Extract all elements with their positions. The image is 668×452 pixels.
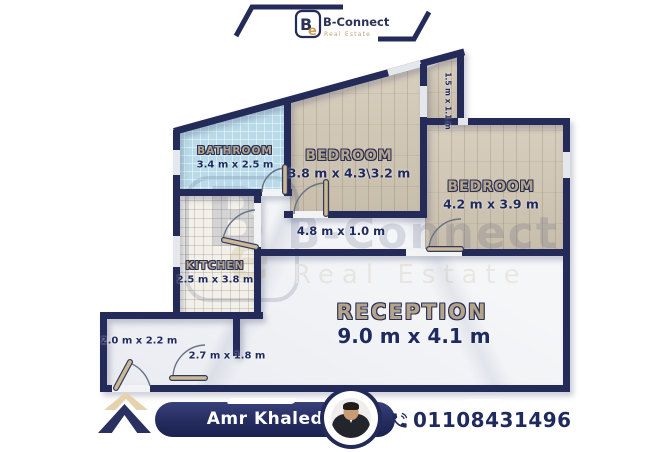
phone-icon	[390, 411, 409, 430]
bedroom-2-dims: 4.2 m x 3.9 m	[443, 197, 539, 212]
corridor-dims: 4.8 m x 1.0 m	[297, 224, 385, 238]
bedroom-1-label: BEDROOM	[305, 148, 392, 164]
bedroom1-door-arc	[294, 183, 325, 214]
phone-row: 01108431496	[390, 407, 572, 433]
bathroom-label: BATHROOM	[197, 145, 273, 157]
passage-dims: 2.7 m x 1.8 m	[189, 351, 266, 362]
brand-name: B-Connect	[323, 15, 390, 29]
agent-photo	[331, 398, 371, 438]
entrance-door-leaf	[116, 362, 130, 388]
bathroom-dims: 3.4 m x 2.5 m	[197, 160, 274, 171]
kitchen-label: KITCHEN	[186, 260, 245, 272]
bedroom2-door-arc	[429, 219, 461, 247]
agent-name: Amr Khaled	[195, 409, 335, 429]
reception-dims: 9.0 m x 4.1 m	[337, 324, 490, 348]
bathroom-door-arc	[262, 168, 285, 192]
reception-label: RECEPTION	[336, 300, 487, 324]
kitchen-door-arc	[223, 210, 255, 239]
phone-number: 01108431496	[413, 408, 572, 432]
brand-header: B e B-Connect Real Estate	[228, 2, 440, 50]
banner-glint	[226, 398, 298, 404]
b-connect-monogram-icon: B e	[296, 11, 320, 39]
entrance-door-arc	[130, 363, 150, 386]
bedroom-2-label: BEDROOM	[447, 179, 534, 195]
entry-dims: 2.0 m x 2.2 m	[101, 336, 178, 347]
bedroom-1-dims: 3.8 m x 4.3\3.2 m	[288, 166, 411, 181]
kitchen-dims: 2.5 m x 3.8 m	[177, 275, 254, 286]
floorplan-poster: B e B-Connect Real Estate B e B-Connect …	[0, 0, 668, 452]
wall-glint	[460, 399, 503, 406]
brand-tagline: Real Estate	[324, 31, 371, 38]
floor-plan: B e B-Connect Real Estate	[95, 48, 575, 395]
balcony-dims: 1.5 m x 1.1 m	[444, 72, 453, 129]
agent-avatar	[320, 387, 382, 449]
monogram-e: e	[308, 24, 317, 39]
